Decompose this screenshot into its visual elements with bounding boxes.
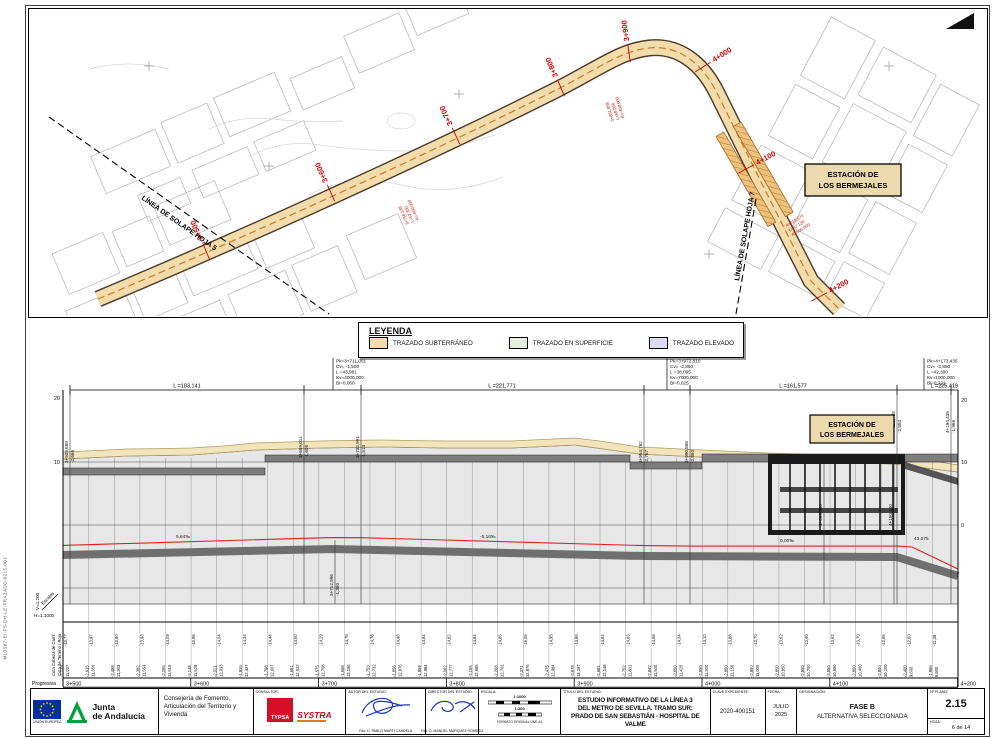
pk-block-2: Pk=3+972,810 Cv= -2,850 L =38,095 Kv=700…	[667, 358, 701, 390]
svg-text:3+800: 3+800	[449, 682, 464, 688]
svg-text:-13,70: -13,70	[855, 634, 860, 646]
fecha-anio: 2025	[775, 712, 787, 719]
svg-text:-2,767: -2,767	[644, 450, 649, 463]
svg-text:12,976: 12,976	[525, 664, 530, 677]
curve-note-2: 3+891,858 L=68,056 R=-450,000	[604, 96, 626, 122]
title-block: UNIÓN EUROPEA Junta de Andalucía Conseje…	[30, 688, 985, 735]
svg-text:-13,62: -13,62	[830, 634, 835, 646]
typsa-logo: TYPSA	[267, 698, 293, 722]
plano-cell: Nº PLANO: 2.15 HOJA: 6 de 14	[927, 689, 984, 734]
svg-text:3+600: 3+600	[194, 682, 209, 688]
axis-right-10: 10	[961, 460, 967, 466]
svg-text:-15,05: -15,05	[523, 634, 528, 646]
eu-caption: UNIÓN EUROPEA	[33, 720, 61, 724]
svg-text:Cv= -1,500: Cv= -1,500	[336, 364, 359, 369]
svg-text:-2,382: -2,382	[136, 665, 141, 677]
svg-text:-1,681: -1,681	[289, 665, 294, 677]
svg-text:11,500: 11,500	[653, 664, 658, 677]
autor-signature-icon	[356, 695, 416, 723]
progresiva-tick: 3+600	[191, 678, 209, 688]
svg-text:ESTACIÓN DE: ESTACIÓN DE	[828, 420, 876, 429]
svg-text:-1,380: -1,380	[335, 583, 340, 596]
svg-text:4+000: 4+000	[705, 682, 720, 688]
svg-text:11,615: 11,615	[167, 664, 172, 677]
svg-text:-13,60: -13,60	[804, 634, 809, 646]
profile-station-label-box: ESTACIÓN DE LOS BERMEJALES	[810, 415, 894, 443]
svg-text:-2,062: -2,062	[442, 665, 447, 677]
svg-text:-14,48: -14,48	[395, 634, 400, 646]
svg-text:-14,10: -14,10	[702, 634, 707, 646]
svg-text:12,427: 12,427	[244, 664, 249, 677]
svg-text:3+900: 3+900	[619, 20, 631, 42]
progresiva-tick: 4+100	[830, 678, 848, 688]
svg-text:-14,34: -14,34	[242, 634, 247, 646]
systra-swoosh	[297, 720, 326, 722]
overlap-line-right: LÍNEA DE SOLAPE HOJA 7	[732, 191, 757, 314]
svg-text:12,761: 12,761	[500, 664, 505, 677]
svg-text:12,777: 12,777	[448, 664, 453, 677]
svg-text:13,267: 13,267	[576, 664, 581, 677]
alternativa-label: ALTERNATIVA SELECCIONADA	[817, 713, 908, 720]
svg-text:3+600: 3+600	[313, 161, 330, 184]
alignment-band	[98, 48, 839, 309]
legend-swatch-elevado	[649, 338, 667, 349]
span-label-3: L =161,577	[779, 384, 806, 390]
svg-text:-13,85: -13,85	[881, 634, 886, 646]
svg-text:-13,88: -13,88	[728, 634, 733, 646]
clave-cell: CLAVE EXPEDIENTE: 2020-400151	[710, 689, 765, 734]
svg-text:L =42,300: L =42,300	[927, 370, 948, 375]
svg-text:V=1:200: V=1:200	[35, 592, 40, 610]
svg-text:-2,752: -2,752	[621, 665, 626, 677]
svg-text:-2,578: -2,578	[570, 665, 575, 677]
svg-text:4+194,435: 4+194,435	[945, 411, 950, 433]
svg-text:-12,60: -12,60	[906, 634, 911, 646]
axis-left-20: 20	[54, 396, 60, 402]
svg-text:-14,82: -14,82	[446, 634, 451, 646]
svg-text:11,000: 11,000	[755, 664, 760, 677]
svg-text:-2,850: -2,850	[897, 420, 902, 433]
svg-text:Bi=0,221: Bi=0,221	[927, 381, 946, 386]
svg-text:Kv=4000,000: Kv=4000,000	[336, 375, 364, 380]
svg-text:-14,84: -14,84	[421, 634, 426, 646]
svg-text:10,200: 10,200	[883, 664, 888, 677]
svg-text:8,900: 8,900	[934, 666, 939, 677]
svg-text:10,550: 10,550	[832, 664, 837, 677]
svg-text:-14,83: -14,83	[625, 634, 630, 646]
svg-text:4+200: 4+200	[827, 277, 850, 295]
park-contours	[89, 64, 503, 195]
grade-label-2: -5,16‰	[480, 534, 496, 540]
svg-text:-13,77: -13,77	[63, 634, 68, 646]
scale-1000-label: 1:1000	[513, 694, 525, 699]
svg-text:9,600: 9,600	[908, 666, 913, 677]
svg-text:-14,50: -14,50	[293, 634, 298, 646]
svg-text:4+100: 4+100	[833, 682, 848, 688]
systra-logo: SYSTRA	[297, 711, 331, 722]
svg-text:LOS BERMEJALES: LOS BERMEJALES	[819, 181, 888, 190]
svg-text:Pk=3+711,001: Pk=3+711,001	[336, 359, 367, 364]
svg-text:-1,513: -1,513	[361, 445, 366, 458]
progresiva-tick: 3+500	[63, 678, 81, 688]
svg-text:11,303: 11,303	[116, 664, 121, 677]
map-station-label-box: ESTACIÓN DE LOS BERMEJALES	[805, 164, 901, 196]
director-signature-icon	[427, 695, 477, 723]
svg-text:3+800: 3+800	[543, 56, 560, 79]
svg-text:-13,70: -13,70	[753, 634, 758, 646]
axis-right-20: 20	[961, 398, 967, 404]
legend-swatch-superficie	[509, 338, 527, 349]
legend-item-subterraneo: TRAZADO SUBTERRÁNEO	[369, 337, 473, 349]
svg-text:-2,800: -2,800	[877, 665, 882, 677]
svg-text:-2,850: -2,850	[698, 665, 703, 677]
svg-text:4+095,300: 4+095,300	[818, 504, 823, 526]
svg-text:-13,62: -13,62	[779, 634, 784, 646]
consultor-cell: CONSULTOR: TYPSA SYSTRA	[253, 689, 346, 734]
junta-andalucia-icon	[66, 700, 88, 724]
span-label-2: L =221,771	[488, 384, 515, 390]
svg-text:10,850: 10,850	[781, 664, 786, 677]
svg-text:11,629: 11,629	[193, 664, 198, 677]
svg-text:-2,265: -2,265	[161, 665, 166, 677]
svg-text:11,801: 11,801	[627, 664, 632, 677]
drawing-sheet: { "sheet": { "file_code": "ML3S67-EI-PS-…	[0, 0, 996, 738]
svg-text:12,984: 12,984	[423, 664, 428, 677]
progresiva-tick: 3+800	[446, 678, 464, 688]
svg-text:12,607: 12,607	[269, 664, 274, 677]
svg-text:12,685: 12,685	[474, 664, 479, 677]
svg-text:-14,84: -14,84	[600, 634, 605, 646]
svg-text:-1,753: -1,753	[366, 665, 371, 677]
director-cell: DIRECTOR DEL ESTUDIO: Fdo: D. MANUEL MÁR…	[425, 689, 478, 734]
fecha-mes: JULIO	[773, 704, 789, 711]
svg-text:10,400: 10,400	[857, 664, 862, 677]
svg-text:12,732: 12,732	[372, 664, 377, 677]
svg-text:-1,568: -1,568	[340, 665, 345, 677]
svg-text:4+150,300: 4+150,300	[888, 504, 893, 526]
eu-flag-icon	[33, 700, 61, 719]
svg-text:3+505,669: 3+505,669	[64, 441, 69, 463]
scale-200-label: 1:200	[514, 706, 524, 711]
svg-text:-14,09: -14,09	[165, 634, 170, 646]
svg-text:12,013: 12,013	[218, 664, 223, 677]
scale-bar-200	[498, 712, 542, 717]
svg-text:11,300: 11,300	[704, 664, 709, 677]
svg-text:11,420: 11,420	[678, 664, 683, 677]
buildings-cluster-left	[41, 120, 419, 316]
svg-text:LOS BERMEJALES: LOS BERMEJALES	[820, 432, 885, 439]
svg-text:-14,76: -14,76	[370, 634, 375, 646]
svg-text:-1,856: -1,856	[391, 665, 396, 677]
grade-label-4: 43,075	[914, 536, 929, 542]
row-label-carril: Cota Cabeza de Carril	[51, 635, 56, 676]
hoja-value: 6 de 14	[952, 725, 970, 731]
svg-text:-2,842: -2,842	[647, 665, 652, 677]
svg-text:Bi=0,025: Bi=0,025	[670, 381, 689, 386]
svg-text:3+732,991: 3+732,991	[355, 436, 360, 458]
svg-text:L =38,095: L =38,095	[670, 370, 691, 375]
svg-text:4+000: 4+000	[711, 45, 734, 64]
axis-right-0: 0	[961, 523, 964, 529]
junta-logo-cell: UNIÓN EUROPEA Junta de Andalucía	[31, 689, 158, 734]
svg-text:Kv=1000,000: Kv=1000,000	[927, 375, 955, 380]
svg-text:-1,959: -1,959	[417, 665, 422, 677]
svg-text:-13,80: -13,80	[114, 634, 119, 646]
progresiva-tick: 4+000	[702, 678, 720, 688]
svg-text:12,148: 12,148	[602, 664, 607, 677]
plano-number: 2.15	[945, 698, 966, 710]
scales-note: V=1:200 Escalas H=1:1000	[34, 590, 58, 618]
svg-text:-1,608: -1,608	[304, 445, 309, 458]
svg-text:-2,850: -2,850	[672, 665, 677, 677]
svg-text:ESTACIÓN DE: ESTACIÓN DE	[828, 170, 879, 179]
svg-text:-2,021: -2,021	[212, 665, 217, 677]
svg-text:-2,148: -2,148	[187, 665, 192, 677]
svg-text:H=1:1000: H=1:1000	[34, 613, 54, 618]
svg-text:-13,97: -13,97	[89, 634, 94, 646]
svg-text:-14,44: -14,44	[267, 634, 272, 646]
study-title: ESTUDIO INFORMATIVO DE LA LÍNEA 3 DEL ME…	[561, 697, 710, 729]
fase-label: FASE B	[850, 704, 875, 711]
fecha-cell: FECHA: JULIO 2025	[765, 689, 797, 734]
svg-text:-2,475: -2,475	[545, 665, 550, 677]
svg-text:-2,488: -2,488	[110, 665, 115, 677]
svg-text:-2,371: -2,371	[519, 665, 524, 677]
progresiva-tick: 3+900	[574, 678, 592, 688]
svg-text:-14,34: -14,34	[676, 634, 681, 646]
svg-text:-2,400: -2,400	[902, 665, 907, 677]
legend-box: LEYENDA TRAZADO SUBTERRÁNEO TRAZADO EN S…	[358, 322, 744, 358]
svg-text:3+500: 3+500	[66, 682, 81, 688]
svg-text:-11,38: -11,38	[932, 634, 937, 646]
svg-text:-2,681: -2,681	[596, 665, 601, 677]
svg-text:3+990,858: 3+990,858	[684, 441, 689, 463]
alignment-centerline	[98, 48, 839, 309]
curve-note-1: 3+756,138 L=52,350 R=-650,000	[396, 198, 420, 225]
svg-text:-2,615: -2,615	[85, 665, 90, 677]
svg-text:3+954,762: 3+954,762	[638, 441, 643, 463]
svg-text:Escalas: Escalas	[40, 590, 55, 605]
grade-label-1: 5,64‰	[176, 534, 190, 540]
svg-text:-14,75: -14,75	[344, 634, 349, 646]
svg-text:11,037: 11,037	[65, 664, 70, 677]
autor-cell: AUTOR DEL ESTUDIO: Fdo: D. PABLO MARTÍ C…	[345, 689, 425, 734]
svg-text:Pk=4+173,435: Pk=4+173,435	[927, 359, 958, 364]
svg-text:-2,739: -2,739	[59, 665, 64, 677]
eu-flag: UNIÓN EUROPEA	[33, 700, 61, 724]
svg-text:4+200: 4+200	[961, 682, 976, 688]
clave-value: 2020-400151	[720, 709, 755, 715]
svg-text:-2,850: -2,850	[800, 665, 805, 677]
svg-text:-1,575: -1,575	[315, 665, 320, 677]
grade-label-3: 0,00‰	[780, 538, 794, 544]
svg-text:-2,850: -2,850	[826, 665, 831, 677]
profile-svg: 5,64‰ -5,16‰ 0,00‰ 43,075 L =183,141 L =…	[28, 358, 988, 688]
svg-text:-2,268: -2,268	[494, 665, 499, 677]
progresiva-tick: 4+200	[958, 678, 976, 688]
svg-text:12,708: 12,708	[321, 664, 326, 677]
progresiva-tick: 3+700	[319, 678, 337, 688]
svg-text:-14,95: -14,95	[549, 634, 554, 646]
junta-name: Junta de Andalucía	[92, 703, 145, 721]
svg-text:3+900: 3+900	[577, 682, 592, 688]
file-code-vertical-text: ML3S67-EI-PS-DH-LE-TRAZADO-0215-001	[3, 470, 12, 660]
legend-swatch-subterraneo	[370, 338, 388, 349]
profile-panel: 5,64‰ -5,16‰ 0,00‰ 43,075 L =183,141 L =…	[28, 358, 988, 688]
escala-cell: ESCALA: 1:1000 1:200 FORMATO ORIGINAL UN…	[478, 689, 560, 734]
svg-text:3+689,011: 3+689,011	[298, 436, 303, 458]
north-arrow-icon	[946, 13, 974, 29]
legend-item-elevado: TRAZADO ELEVADO	[649, 337, 734, 349]
plan-map-panel: 3+500 3+600 3+700 3+800 3+900 4+000 4+10…	[28, 8, 988, 318]
svg-text:12,622: 12,622	[295, 664, 300, 677]
svg-text:10,700: 10,700	[806, 664, 811, 677]
formato-note: FORMATO ORIGINAL UNE-A1	[497, 720, 543, 724]
axis-left-10: 10	[54, 460, 60, 466]
svg-text:-2,850: -2,850	[775, 665, 780, 677]
svg-text:13,156: 13,156	[346, 664, 351, 677]
svg-text:-2,666: -2,666	[70, 450, 75, 463]
svg-text:-14,29: -14,29	[319, 634, 324, 646]
svg-text:11,150: 11,150	[730, 664, 735, 677]
plan-map-svg: 3+500 3+600 3+700 3+800 3+900 4+000 4+10…	[29, 9, 986, 316]
svg-text:-2,165: -2,165	[468, 665, 473, 677]
svg-text:3+712,996: 3+712,996	[329, 574, 334, 596]
scale-bar-1000	[488, 700, 552, 705]
svg-text:-13,98: -13,98	[191, 634, 196, 646]
svg-text:-2,850: -2,850	[851, 665, 856, 677]
svg-text:-1,966: -1,966	[951, 420, 956, 433]
svg-text:-2,850: -2,850	[749, 665, 754, 677]
svg-text:Cv= -2,850: Cv= -2,850	[670, 364, 693, 369]
svg-text:3+700: 3+700	[322, 682, 337, 688]
legend-title: LEYENDA	[369, 326, 743, 336]
svg-text:Bi=0,060: Bi=0,060	[336, 381, 355, 386]
svg-text:3+700: 3+700	[437, 104, 454, 127]
titulo-cell: TÍTULO DEL ESTUDIO: ESTUDIO INFORMATIVO …	[560, 689, 710, 734]
svg-text:-13,93: -13,93	[140, 634, 145, 646]
span-label-1: L =183,141	[173, 384, 200, 390]
director-firma: Fdo: D. MANUEL MÁRQUEZ ROMERO	[421, 729, 483, 733]
svg-text:-1,966: -1,966	[928, 665, 933, 677]
svg-text:-14,84: -14,84	[472, 634, 477, 646]
designacion-cell: DESIGNACIÓN: FASE B ALTERNATIVA SELECCIO…	[796, 689, 927, 734]
svg-text:Kv=7000,000: Kv=7000,000	[670, 375, 698, 380]
svg-text:-2,850: -2,850	[690, 450, 695, 463]
legend-item-superficie: TRAZADO EN SUPERFICIE	[509, 337, 613, 349]
row-label-progresiva: Progresiva	[32, 681, 56, 687]
svg-text:L =43,981: L =43,981	[336, 370, 357, 375]
svg-text:-14,86: -14,86	[574, 634, 579, 646]
svg-text:-2,850: -2,850	[724, 665, 729, 677]
svg-text:12,976: 12,976	[397, 664, 402, 677]
consejeria-cell: Consejería de Fomento, Articulación del …	[158, 689, 253, 734]
svg-text:-14,58: -14,58	[651, 634, 656, 646]
svg-text:12,984: 12,984	[551, 664, 556, 677]
svg-text:11,356: 11,356	[91, 664, 96, 677]
svg-text:11,554: 11,554	[142, 664, 147, 677]
svg-text:Cv= -2,850: Cv= -2,850	[927, 364, 950, 369]
svg-text:Pk=3+972,810: Pk=3+972,810	[670, 359, 701, 364]
svg-text:-1,798: -1,798	[263, 665, 268, 677]
svg-text:-14,04: -14,04	[216, 634, 221, 646]
svg-text:-1,915: -1,915	[238, 665, 243, 677]
svg-text:-14,85: -14,85	[498, 634, 503, 646]
autor-firma: Fdo: D. PABLO MARTÍ CANDELA	[359, 729, 412, 733]
pk-block-1: Pk=3+711,001 Cv= -1,500 L =43,981 Kv=400…	[333, 358, 367, 390]
